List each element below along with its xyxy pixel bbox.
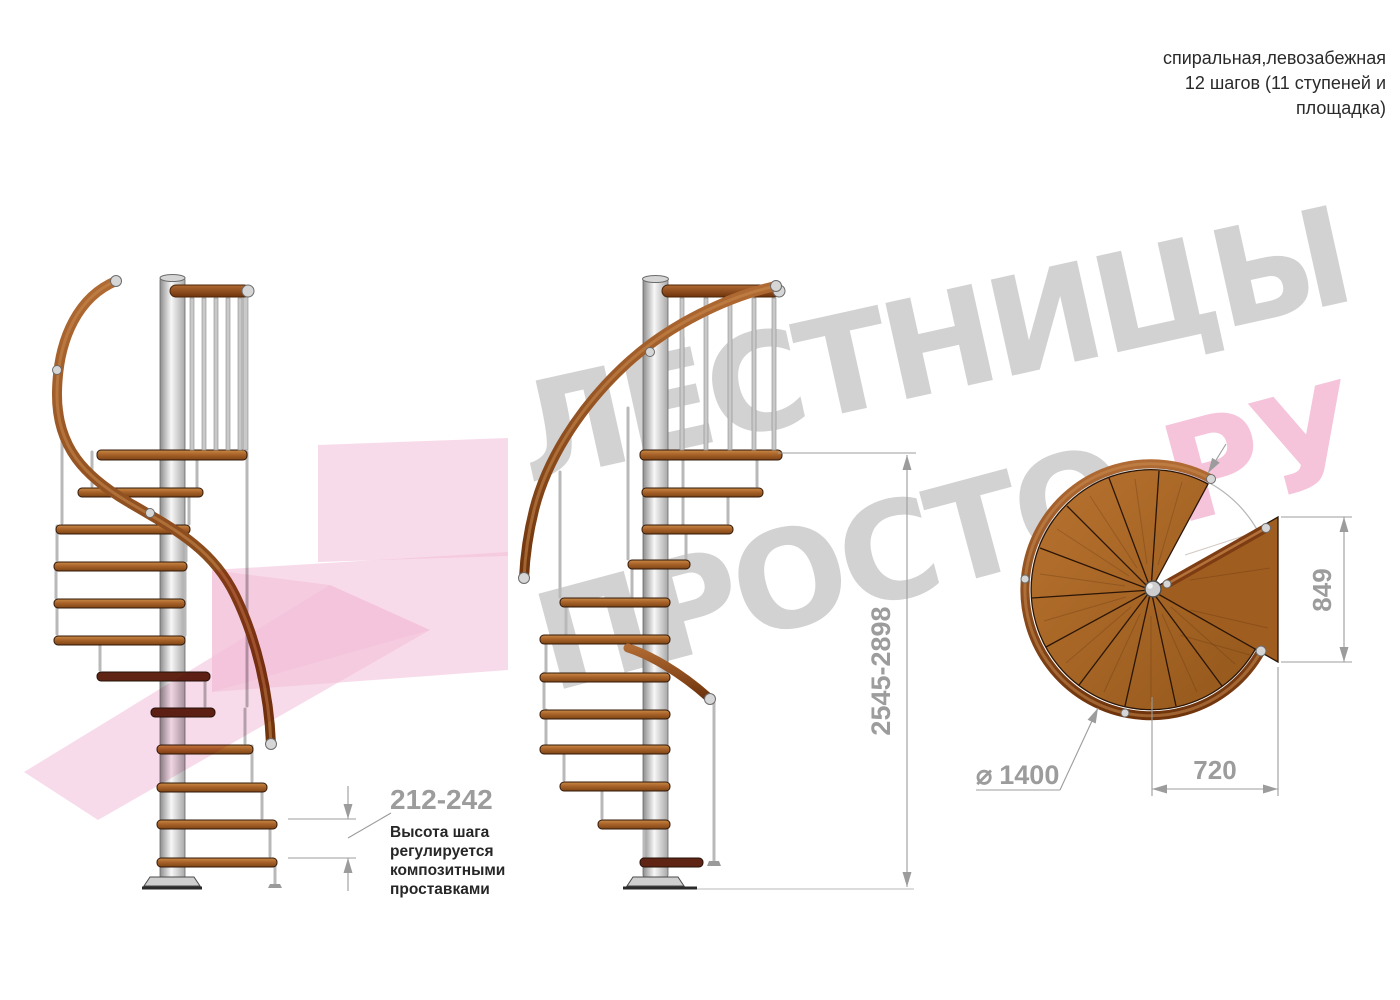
title-line: спиральная,левозабежная <box>1163 46 1386 71</box>
dimension-diameter: ⌀1400 <box>976 706 1102 790</box>
landing-depth-value: 849 <box>1307 568 1337 611</box>
drawing-sheet: ЛЕСТНИЦЫ ПРОСТО.РУ <box>0 0 1400 1000</box>
dimension-landing-depth: 849 <box>1281 517 1352 662</box>
title-line: 12 шагов (11 ступеней и <box>1163 71 1386 96</box>
title-line: площадка) <box>1163 96 1386 121</box>
staircase-drawing: ЛЕСТНИЦЫ ПРОСТО.РУ <box>0 0 1400 1000</box>
dimension-step-height: 212-242 Высота шага регулируется компози… <box>288 784 505 898</box>
title-annotation: спиральная,левозабежная 12 шагов (11 сту… <box>1163 46 1386 121</box>
step-height-note: Высота шага регулируется композитными пр… <box>390 824 505 898</box>
svg-text:проставками: проставками <box>390 881 490 898</box>
center-pole-highlight <box>1147 583 1153 589</box>
diameter-value: ⌀1400 <box>976 760 1059 790</box>
svg-text:регулируется: регулируется <box>390 843 493 860</box>
center-pole-plan <box>1145 581 1161 597</box>
svg-text:Высота шага: Высота шага <box>390 824 490 841</box>
landing-width-value: 720 <box>1193 755 1236 785</box>
svg-text:композитными: композитными <box>390 862 505 879</box>
total-height-value: 2545-2898 <box>866 606 896 735</box>
step-height-value: 212-242 <box>390 784 493 815</box>
